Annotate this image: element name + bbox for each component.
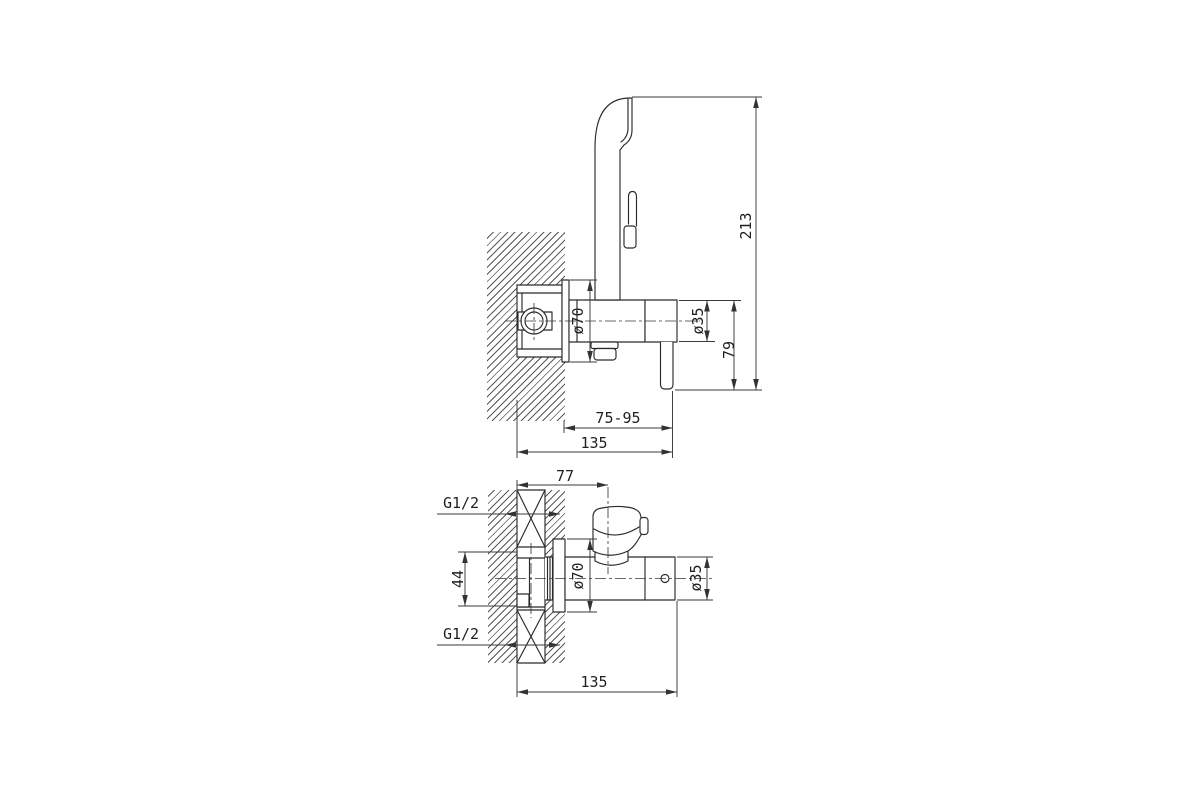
dim-label: ø35	[689, 307, 707, 334]
thread-label: G1/2	[443, 625, 479, 643]
dim-label: 77	[556, 467, 574, 485]
head-button	[640, 518, 648, 535]
side-view: ø70 ø35 79 213	[505, 97, 762, 458]
dim-label: 79	[720, 341, 738, 359]
dim-label: ø35	[687, 564, 705, 591]
bidet-mixer-drawing: ø70 ø35 79 213	[0, 0, 1200, 800]
dim-head-offset: 77	[517, 467, 608, 491]
sprayer-holder	[591, 342, 618, 360]
thread-label: G1/2	[443, 494, 479, 512]
dim-label: 44	[449, 570, 467, 588]
technical-drawing-canvas: ø70 ø35 79 213	[0, 0, 1200, 800]
escutcheon-plate-plan	[553, 539, 565, 612]
dim-label: ø70	[569, 307, 587, 334]
dim-label: 213	[737, 212, 755, 239]
inwall-fitting	[517, 490, 545, 663]
dim-total-height: 213	[632, 97, 762, 390]
dim-label: 135	[580, 673, 607, 691]
dim-label: ø70	[569, 562, 587, 589]
sprayer-hook	[629, 192, 637, 227]
dim-lever-drop: 79	[720, 301, 738, 391]
dim-body-diameter-side: ø35	[679, 301, 741, 342]
hand-sprayer	[595, 98, 637, 300]
dim-label: 75-95	[595, 409, 640, 427]
dim-label: 135	[580, 434, 607, 452]
plan-view: 77 G1/2 44 G1/2	[437, 467, 713, 697]
control-lever	[661, 342, 674, 389]
dim-body-width: 44	[449, 552, 517, 606]
